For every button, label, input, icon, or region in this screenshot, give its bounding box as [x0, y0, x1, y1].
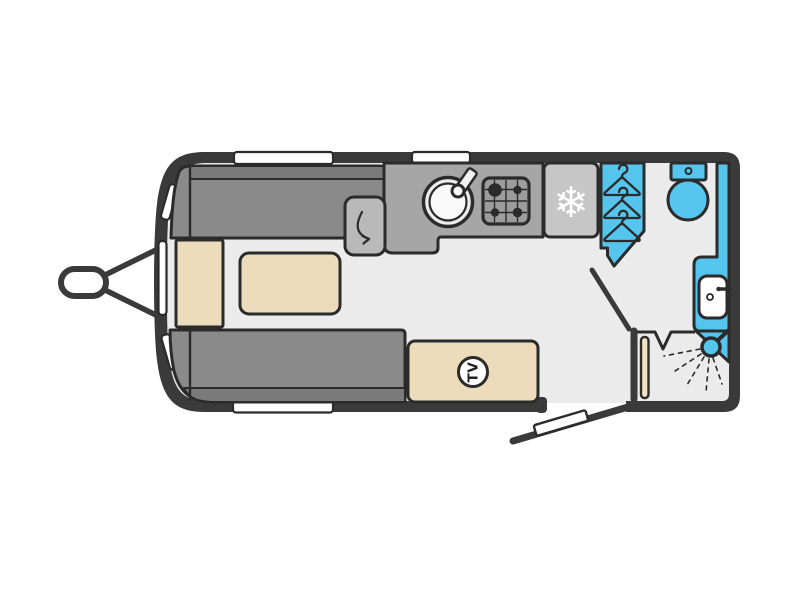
hitch-bar-bottom: [103, 289, 162, 318]
nearside-sofa: [170, 330, 405, 402]
hitch-coupling: [61, 269, 106, 296]
washbasin: [699, 276, 730, 318]
snowflake-icon: ❄: [553, 178, 588, 227]
burner-small-2: [491, 208, 499, 216]
worktop-flap: [345, 197, 385, 255]
window-top-kitchen: [412, 152, 470, 163]
basin-drain: [707, 294, 713, 300]
tow-hitch: [61, 247, 162, 318]
fridge: ❄: [544, 163, 598, 237]
toilet-bowl: [668, 180, 708, 220]
doorway-floor: [546, 397, 626, 403]
sink-tap-base: [452, 185, 464, 197]
hitch-bar-top: [103, 247, 162, 276]
front-chest: [176, 240, 223, 327]
hob-icon: [483, 178, 529, 224]
tv-label: TV: [466, 362, 482, 383]
burner-large: [488, 183, 502, 197]
caravan-floorplan: ❄: [0, 0, 800, 600]
table: [240, 253, 340, 314]
offside-sofa-backrest: [190, 166, 384, 179]
washroom-door: [641, 337, 649, 398]
tv-unit: TV: [408, 341, 538, 402]
window-top-left: [234, 152, 333, 164]
window-front-center: [159, 241, 167, 315]
burner-small-1: [513, 186, 521, 194]
shower-head: [702, 338, 720, 356]
toilet-flush-button: [686, 168, 692, 174]
nearside-sofa-backrest: [184, 388, 405, 402]
toilet: [668, 163, 708, 220]
burner-small-3: [513, 208, 523, 218]
